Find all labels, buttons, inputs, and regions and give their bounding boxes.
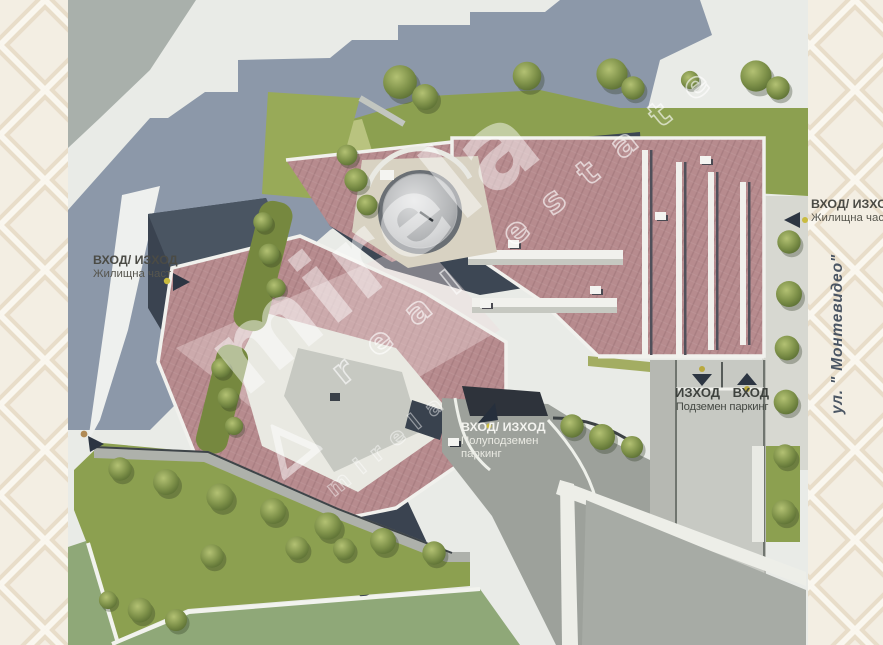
semi-underground-marker-dot: [486, 423, 491, 428]
dome: [383, 174, 457, 248]
street-name-label: ул. " Монтевидео": [829, 254, 847, 414]
residential-right-marker-dot: [802, 217, 808, 223]
strip-sidewalk: [752, 446, 764, 542]
site-render-svg: [0, 0, 883, 645]
residential-left-marker-dot: [164, 278, 170, 284]
underground-exit-entrance-row: ИЗХОД ВХОД: [671, 385, 773, 400]
exit-marker-dot: [699, 366, 705, 372]
corner-marker-dot: [81, 431, 88, 438]
exit-label: ИЗХОД: [675, 385, 720, 400]
site-plan-render: mirela real estate mirela ВХОД/ ИЗХОД Жи…: [0, 0, 883, 645]
label-underground-parking: ИЗХОД ВХОД Подземен паркинг: [671, 385, 773, 413]
entrance-label: ВХОД: [733, 385, 769, 400]
underground-caption: Подземен паркинг: [671, 401, 773, 413]
